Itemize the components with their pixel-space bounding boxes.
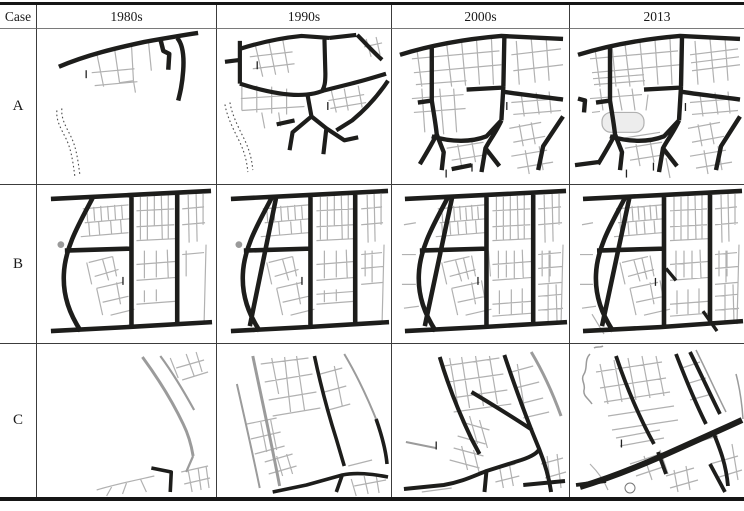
landmark-icon [299,277,310,287]
map-b-2013 [570,185,744,343]
gray-roads [142,357,193,456]
map-cell-c-2013 [570,344,744,497]
row-label-c: C [0,344,37,497]
arterial-roads [59,33,198,101]
header-2013: 2013 [570,5,744,29]
landmark-icon [120,277,131,287]
gray-dot-landmark [57,241,64,248]
map-a-2013 [570,29,744,184]
landmark-icon [324,102,335,112]
arterial-roads [273,356,388,492]
map-a-2000s [392,29,569,184]
landmark-icon [623,170,634,180]
case-period-table: Case 1980s 1990s 2000s 2013 A [0,2,744,501]
map-cell-b-1990s [217,185,392,344]
map-c-2000s [392,344,569,497]
header-2000s-label: 2000s [464,9,496,25]
map-b-2000s [392,185,569,343]
minor-streets [402,194,563,324]
landmark-icon [443,170,454,180]
map-c-1990s [217,344,391,497]
map-c-1980s [37,344,216,497]
map-cell-a-2013 [570,29,744,185]
map-cell-c-1990s [217,344,392,497]
arterial-roads [404,355,565,492]
map-cell-a-1980s [37,29,217,185]
map-cell-c-1980s [37,344,217,497]
map-a-1980s [37,29,216,184]
stream-dotted [57,108,80,176]
landmark-icon [475,277,486,287]
case-b-label: B [13,256,23,273]
header-2013-label: 2013 [644,9,671,25]
small-circle-mark [625,483,635,493]
arterial-roads [51,191,212,331]
row-label-a: A [0,29,37,185]
header-1980s: 1980s [37,5,217,29]
landmark-icon [83,70,94,80]
landmark-icon [682,103,693,113]
map-cell-a-2000s [392,29,570,185]
map-cell-c-2000s [392,344,570,497]
gray-dot-landmark [235,241,242,248]
map-c-2013 [570,344,744,497]
case-c-label: C [13,412,23,429]
gray-roads [531,352,561,416]
row-label-b: B [0,185,37,344]
header-case-label: Case [5,9,31,25]
map-cell-b-2013 [570,185,744,344]
header-case: Case [0,5,37,29]
map-a-1990s [217,29,391,184]
header-1980s-label: 1980s [110,9,142,25]
gray-roads-minor [406,442,436,448]
map-cell-b-1980s [37,185,217,344]
map-cell-b-2000s [392,185,570,344]
header-1990s: 1990s [217,5,392,29]
map-cell-a-1990s [217,29,392,185]
arterial-roads [151,468,171,492]
minor-streets [261,194,384,324]
stream-dotted [225,103,253,173]
header-1990s-label: 1990s [288,9,320,25]
map-b-1990s [217,185,391,343]
map-b-1980s [37,185,216,343]
figure-table: Case 1980s 1990s 2000s 2013 A [0,0,744,511]
header-2000s: 2000s [392,5,570,29]
minor-streets [81,194,206,324]
case-a-label: A [13,98,24,115]
landmark-icon [503,102,514,112]
gray-block [602,112,644,132]
